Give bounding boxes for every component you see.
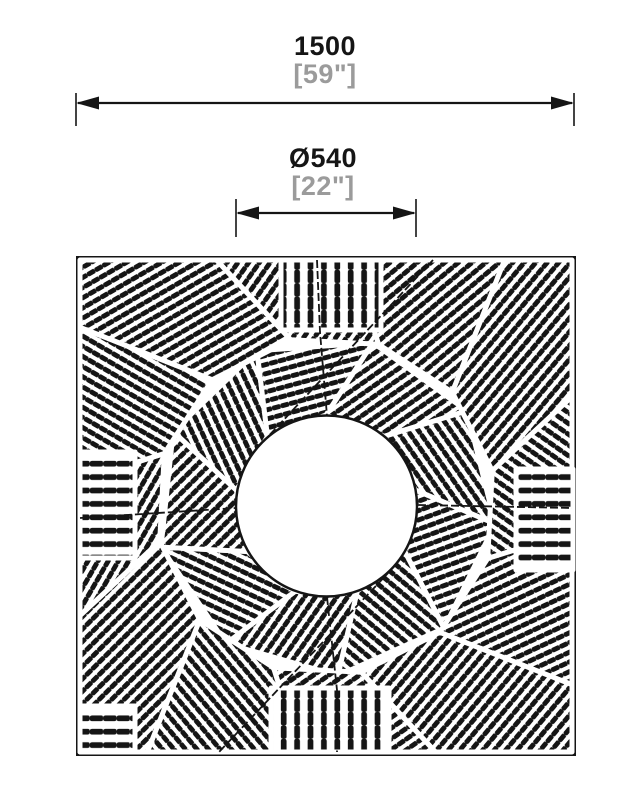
opening-diameter-dimension-line: [236, 199, 416, 237]
arrowhead-right-icon: [393, 207, 416, 220]
arrowhead-right-icon: [551, 97, 574, 110]
overall-width-imperial: [59"]: [175, 61, 475, 88]
tree-grate-top-view: [78, 258, 575, 755]
opening-diameter-imperial: [22"]: [173, 173, 473, 200]
arrowhead-left-icon: [76, 97, 99, 110]
arrowhead-left-icon: [236, 207, 259, 220]
opening-diameter-value: Ø540: [173, 145, 473, 172]
overall-width-value: 1500: [175, 33, 475, 60]
drawing-page: 1500 [59"] Ø540 [22"]: [0, 0, 639, 800]
technical-drawing-canvas: [0, 0, 639, 800]
overall-width-dimension-line: [76, 93, 574, 126]
